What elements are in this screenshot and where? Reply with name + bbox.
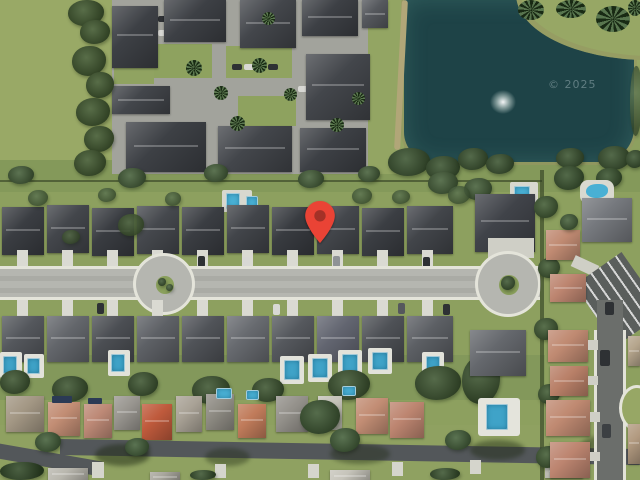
house-roof [150, 472, 180, 480]
pool [216, 388, 232, 399]
house-roof [470, 330, 526, 376]
car [97, 303, 104, 314]
house-roof [48, 402, 80, 436]
palm-tree [214, 86, 228, 100]
tree-shadow [470, 440, 525, 460]
pool [284, 360, 300, 380]
car [232, 64, 242, 70]
house-roof [550, 442, 590, 478]
complex-lawn [114, 66, 154, 84]
palm-tree [262, 12, 275, 25]
townhouse-roof [362, 208, 404, 256]
pool [27, 358, 40, 374]
palm-tree [252, 58, 267, 73]
car [398, 303, 405, 314]
driveway [215, 464, 226, 478]
townhouse-roof [47, 316, 89, 362]
palm-tree [628, 0, 640, 16]
apartment-building [126, 122, 206, 172]
house-roof [142, 404, 172, 440]
car [273, 304, 280, 315]
apartment-building [112, 86, 170, 114]
house-roof [550, 366, 588, 396]
driveway [392, 462, 403, 476]
driveway [308, 464, 319, 478]
pool [586, 184, 608, 198]
solar-panel [52, 396, 72, 403]
driveway [590, 412, 600, 422]
townhouse-roof [47, 205, 89, 253]
house-roof [546, 400, 590, 436]
house-roof [84, 404, 112, 438]
apartment-building [362, 0, 388, 28]
driveway [588, 340, 598, 350]
location-pin[interactable] [305, 201, 335, 243]
house-roof [6, 396, 44, 432]
palm-tree [330, 118, 344, 132]
tree-shadow [205, 448, 250, 466]
palm-tree [518, 0, 544, 20]
side-street [597, 300, 623, 480]
house-roof [548, 330, 588, 362]
solar-panel [88, 398, 102, 404]
palm-tree [352, 92, 365, 105]
car [600, 350, 610, 366]
driveway [588, 376, 598, 385]
house-roof [356, 398, 388, 434]
sidewalk [0, 297, 540, 300]
townhouse-roof [182, 207, 224, 255]
fence-line [0, 180, 542, 182]
pool [372, 352, 388, 370]
house-roof [238, 404, 266, 438]
house-roof [48, 468, 88, 480]
apartment-building [218, 126, 292, 172]
townhouse-roof [227, 205, 269, 253]
pool [111, 354, 125, 372]
house-roof [330, 470, 370, 480]
palm-tree [284, 88, 297, 101]
house-roof [628, 424, 640, 464]
car [443, 304, 450, 315]
tree [626, 150, 640, 168]
fountain [490, 90, 516, 114]
palm-tree [596, 6, 630, 32]
house-roof [176, 396, 202, 432]
house-roof [582, 198, 632, 242]
palm-tree [186, 60, 202, 76]
palm-tree [230, 116, 245, 131]
driveway [92, 462, 104, 478]
pin-body [305, 201, 335, 243]
townhouse-roof [137, 206, 179, 254]
apartment-building [112, 6, 158, 68]
satellite-map[interactable]: © 2025 [0, 0, 640, 480]
house-roof [114, 396, 140, 430]
car [605, 302, 614, 315]
townhouse-roof [2, 207, 44, 255]
apartment-building [300, 128, 366, 172]
pool [486, 404, 508, 430]
apartment-building [306, 54, 370, 120]
complex-lawn [150, 44, 212, 78]
street-lane-shade [0, 276, 540, 281]
street-lane-shade [0, 288, 540, 293]
tree [630, 66, 640, 136]
pool [342, 386, 356, 396]
driveway [590, 452, 600, 461]
house-roof [206, 394, 234, 430]
car [602, 424, 611, 438]
townhouse-roof [407, 206, 453, 254]
palm-tree [556, 0, 586, 18]
pin-dot [314, 210, 325, 221]
driveway [470, 460, 481, 474]
car [268, 64, 278, 70]
apartment-building [164, 0, 226, 42]
apartment-building [302, 0, 358, 36]
house-roof [628, 336, 640, 366]
house-roof [550, 274, 586, 302]
house-roof [390, 402, 424, 438]
townhouse-roof [137, 316, 179, 362]
pool [246, 390, 259, 400]
townhouse-roof [182, 316, 224, 362]
townhouse-roof [227, 316, 269, 362]
pool [312, 358, 328, 378]
